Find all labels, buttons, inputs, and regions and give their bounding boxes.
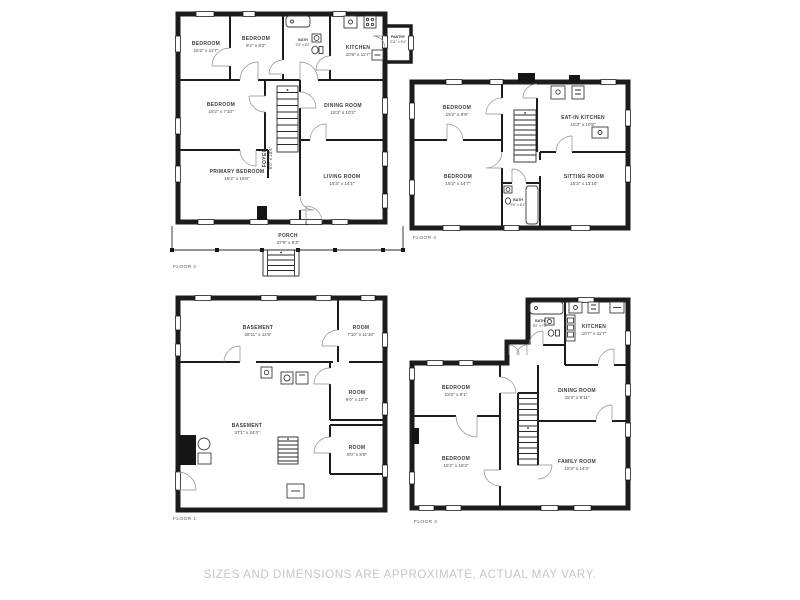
room-dims: 10'9" x 11'7" [346,52,371,57]
toilet-icon [312,46,323,54]
oven-icon [610,302,624,313]
room-label: KITCHEN [346,45,370,51]
room-dims: 6'0" x 18'4" [268,146,273,169]
floor-label: FLOOR 2 [173,264,196,270]
appliance-icon [592,127,608,138]
room-dims: 15'3" x 13'10" [570,181,598,186]
stairs-icon [277,86,298,152]
room-dims: 15'3" x 10'8" [570,122,596,127]
room-label: BEDROOM [442,456,470,462]
foyer-label-group: FOYER 6'0" x 18'4" [262,146,273,169]
floor-label: FLOOR 3 [414,519,437,525]
toilet-icon [548,330,559,336]
room-label: BASEMENT [243,325,273,331]
bathtub-icon [530,302,563,314]
dryer-icon [296,372,308,384]
floor-label: FLOOR 4 [413,235,436,241]
laundry-sink-icon [261,367,272,378]
bathtub-icon [526,186,538,224]
counter-icon [566,315,575,341]
floor-2-plan: BEDROOM 15'2" x 11'7" BEDROOM 9'2" x 8'2… [170,12,414,277]
room-dims: 15'3" x 14'1" [329,181,355,186]
chimney-icon [569,75,580,82]
floor-1-plan: BASEMENT 28'11" x 11'9" ROOM 7'10" x 11'… [173,296,388,523]
room-dims: 15'2" x 7'10" [208,109,234,114]
room-label: BEDROOM [444,174,472,180]
room-label: KITCHEN [582,324,606,330]
room-dims: 15'2" x 15'3" [443,463,469,468]
bathtub-icon [286,16,310,27]
room-label: BATH [298,38,308,42]
closet-nook [412,428,419,444]
room-dims: 15'2" x 11'7" [194,48,219,53]
room-dims: 9'0" x 10'7" [346,397,369,402]
room-label: BATH [535,319,545,323]
room-label: BEDROOM [442,385,470,391]
stairs-icon [278,437,298,464]
room-label: BEDROOM [242,36,270,42]
room-label: PORCH [278,233,298,239]
stove-icon [572,86,584,99]
entry-door-leaf [257,206,267,220]
sink-icon [504,186,512,193]
room-dims: 9'2" x 8'2" [246,43,266,48]
kitchen-sink-icon [344,16,357,28]
pantry-wing-wall [385,26,411,62]
room-dims: 37'9" x 5'3" [277,240,300,245]
room-dims: 15'2" x 14'7" [445,181,471,186]
kitchen-sink-icon [551,86,565,99]
room-dims: 5'3" x 8'2" [296,43,312,47]
room-label: ROOM [349,390,366,396]
floor-3-plan: BATH 5'0" x 7'8" KITCHEN 10'7" x 11'7" B… [410,298,631,526]
stairs-icon [518,393,538,465]
room-label: DINING ROOM [558,388,596,394]
floor-4-plan: BEDROOM 15'2" x 9'9" EAT-IN KITCHEN 15'3… [410,73,631,241]
appliance-icon [372,50,383,60]
room-dims: 37'1" x 24'4" [234,430,260,435]
room-label: BEDROOM [192,41,220,47]
room-label: BEDROOM [443,105,471,111]
room-dims: 28'11" x 11'9" [244,332,271,337]
kitchen-sink-icon [569,302,582,313]
room-dims: 7'10" x 11'10" [347,332,375,337]
room-label: EAT-IN KITCHEN [561,115,605,121]
room-dims: 15'2" x 9'9" [446,112,469,117]
room-dims: 15'3" x 14'3" [564,466,590,471]
stairs-icon [514,110,536,162]
room-dims: 15'3" x 9'11" [565,395,590,400]
floor-label: FLOOR 1 [173,516,196,522]
room-label: FAMILY ROOM [558,459,596,465]
stove-icon [364,16,376,28]
room-dims: 15'2" x 9'1" [445,392,468,397]
room-label: LIVING ROOM [324,174,361,180]
furnace-icon [179,435,196,465]
room-label: DINING ROOM [324,103,362,109]
floorplan-canvas: BEDROOM 15'2" x 11'7" BEDROOM 9'2" x 8'2… [0,0,800,600]
room-label: ROOM [349,445,366,451]
room-dims: 15'2" x 16'6" [224,176,250,181]
floor-2-door-arcs [212,36,385,222]
room-label: PRIMARY BEDROOM [210,169,265,175]
room-dims: 5'0" x 7'8" [533,324,549,328]
room-label: ROOM [353,325,370,331]
appliance-icon [287,484,304,498]
room-dims: 10'7" x 11'7" [582,331,607,336]
room-dims: 15'3" x 10'3" [330,110,356,115]
room-label: BATH [513,198,523,202]
stove-icon [588,302,599,313]
disclaimer-text: SIZES AND DIMENSIONS ARE APPROXIMATE, AC… [0,569,800,581]
room-dims: 9'0" x 8'9" [347,452,367,457]
sink-icon [312,34,321,42]
chimney-icon [518,73,535,82]
water-heater-icon [198,438,210,450]
floorplan-sheet: BEDROOM 15'2" x 11'7" BEDROOM 9'2" x 8'2… [0,0,800,600]
room-dims: 5'0" x 6'1" [511,203,527,207]
washer-icon [281,372,293,384]
room-label: BEDROOM [207,102,235,108]
appliance-icon [198,453,211,464]
room-dims: 3'11" x 5'4" [390,40,407,44]
room-label: PANTRY [391,35,406,39]
floor-1-door-arcs [178,330,338,490]
room-label: SITTING ROOM [564,174,604,180]
room-label: BASEMENT [232,423,262,429]
porch-steps-icon [263,250,299,276]
